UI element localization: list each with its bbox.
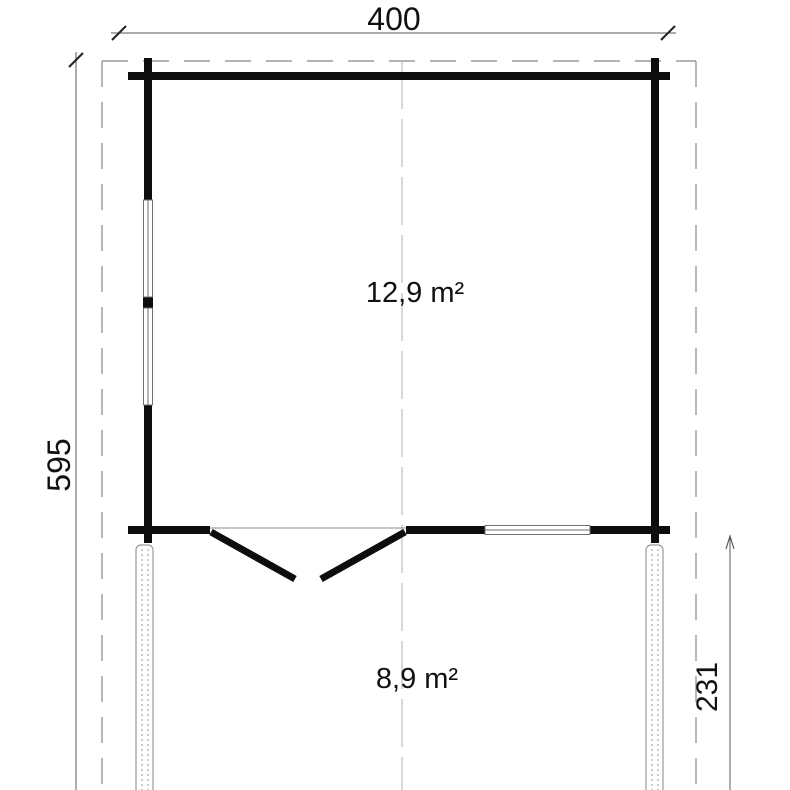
- door-leaf-right: [321, 532, 405, 579]
- left-wall-window-mullion: [143, 297, 153, 308]
- floor-plan-canvas: 400 595 231 12,9 m² 8,9 m²: [0, 0, 790, 790]
- left-wall-upper-segment: [144, 58, 152, 200]
- window-bottom: [485, 526, 590, 535]
- window-left-lower: [144, 308, 153, 405]
- dimension-terrace-label: 231: [691, 662, 724, 712]
- post-right: [646, 545, 663, 790]
- floor-plan-page: 400 595 231 12,9 m² 8,9 m²: [0, 0, 790, 790]
- post-right-outline: [646, 545, 663, 790]
- dimension-overall-depth: 595: [41, 52, 83, 790]
- top-wall: [128, 72, 670, 80]
- left-wall-lower-segment: [144, 405, 152, 543]
- bottom-wall-left-segment: [128, 526, 210, 534]
- post-left: [136, 545, 153, 790]
- post-left-outline: [136, 545, 153, 790]
- dimension-terrace-depth: 231: [691, 536, 734, 790]
- dimension-overall-width: 400: [111, 1, 676, 40]
- bottom-wall-middle-segment: [406, 526, 485, 534]
- main-room-area-label: 12,9 m²: [366, 277, 465, 309]
- dimension-width-label: 400: [367, 1, 420, 37]
- double-door: [210, 528, 406, 579]
- windows: [144, 200, 591, 535]
- terrace-area-label: 8,9 m²: [376, 663, 459, 695]
- bottom-wall-right-segment: [590, 526, 670, 534]
- right-wall: [651, 58, 659, 543]
- window-left-upper: [144, 200, 153, 297]
- door-leaf-left: [211, 532, 295, 579]
- dimension-depth-label: 595: [41, 438, 77, 491]
